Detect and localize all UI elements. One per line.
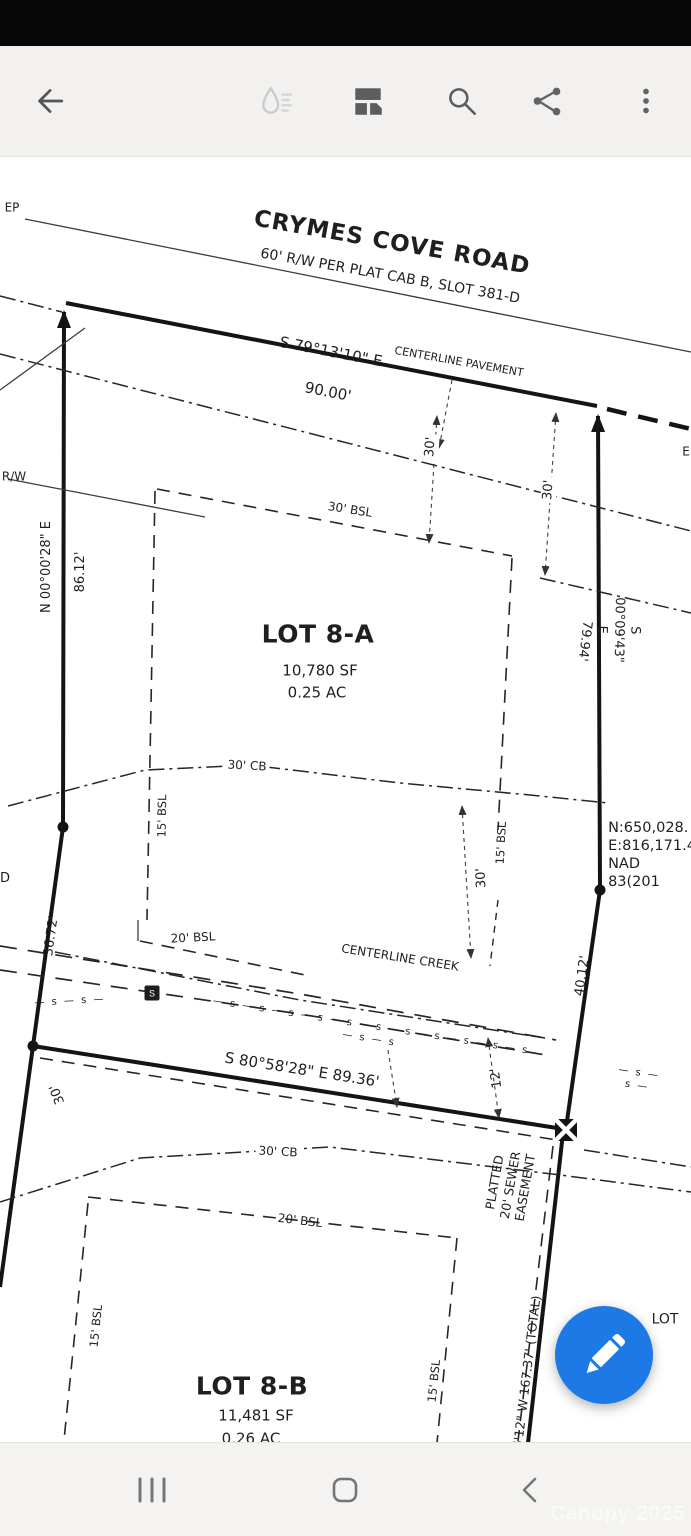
collage-icon [350,83,386,119]
lot8b-area-sf: 11,481 SF [218,1407,293,1426]
recents-icon [136,1476,168,1504]
collage-button[interactable] [344,77,392,125]
home-icon [331,1476,359,1504]
search-icon [444,83,480,119]
search-button[interactable] [438,77,486,125]
dim-30-creek: 30' [473,865,491,892]
gallery-toolbar [0,46,691,157]
topleft-thin [0,328,85,390]
distance-west: 86.12' [73,552,89,593]
monument-crossed-square [555,1119,577,1141]
android-nav-bar: Canopy 2025 [0,1442,691,1536]
dim-30-left: 30' [422,433,440,460]
back-button[interactable] [24,77,72,125]
road-boundary-dash-right [607,409,691,429]
dashdot-east-of-monument [584,1150,691,1167]
effects-button[interactable] [252,77,300,125]
more-button[interactable] [622,77,670,125]
dim-12: 12' [488,1067,507,1089]
east-boundary-mid [566,890,600,1128]
lot-partial: LOT [652,1311,679,1329]
back-nav-button[interactable] [510,1468,550,1512]
photo-watermark: Canopy 2025 [550,1502,685,1526]
bsl-15-right-8a: 15' BSL [493,821,510,865]
bsl-right-8b-line [437,1238,457,1443]
west-boundary-lower [0,1046,33,1287]
dim-30-right: 30' [540,476,558,503]
bsl-right-8a-line [498,558,512,830]
bsl-left-8a-line [147,491,155,920]
dim-leader-south [388,1050,397,1107]
plat-photo[interactable]: S EPR/WDECRYMES COVE ROAD60' R/W PER PLA… [0,0,691,1536]
dim-line-30-creek [462,806,471,958]
bsl-20-8a: 20' BSL [170,929,215,946]
edit-fab[interactable] [555,1306,653,1404]
pavement-leader [439,380,452,448]
cb-30-lower: 30' CB [255,1143,301,1160]
pencil-icon [582,1333,627,1378]
d-label: D [0,871,10,887]
bearing-west: N 00°00'28" E [39,521,55,613]
bsl-15-left-8a: 15' BSL [154,794,169,837]
status-bar [0,0,691,46]
ep-label: EP [5,201,20,216]
ink-drop-icon [258,83,294,119]
monument-dot-east [595,885,606,896]
bsl-left-8b-line [64,1203,88,1440]
monument-dot-west-1 [58,822,69,833]
monument-dot-west-2 [28,1041,39,1052]
lot8a-area-sf: 10,780 SF [282,662,357,681]
home-button[interactable] [323,1468,367,1512]
recents-button[interactable] [128,1468,176,1512]
back-arrow-icon [30,83,66,119]
back-chevron-icon [518,1476,542,1504]
creek-buffer-30cb-upper [8,765,608,806]
bearing-east: S 00°09'43" E [593,593,643,667]
topleft-dashdot [0,296,62,312]
phone-screen: S EPR/WDECRYMES COVE ROAD60' R/W PER PLA… [0,0,691,1536]
west-boundary-upper [63,312,64,827]
creek-right-tick [490,900,498,966]
share-icon [529,83,565,119]
sewer-manhole: S [145,986,160,1001]
lot8a-title: LOT 8-A [262,618,375,649]
creek-buffer-30cb-lower [0,1147,691,1202]
rw-label: R/W [2,470,26,485]
bsl-20-8b-line [88,1197,457,1238]
rw-line-left [8,479,205,517]
svg-text:S: S [149,989,155,999]
bsl-20-8a-line [140,941,310,976]
lot8a-area-ac: 0.25 AC [288,684,347,703]
cb-30-upper: 30' CB [224,757,270,774]
overflow-menu-icon [628,83,664,119]
share-button[interactable] [523,77,571,125]
e-label: E [682,445,690,460]
grid-coords: N:650,028. E:816,171.4 NAD 83(201 [608,819,691,892]
lot8b-title: LOT 8-B [196,1370,308,1401]
